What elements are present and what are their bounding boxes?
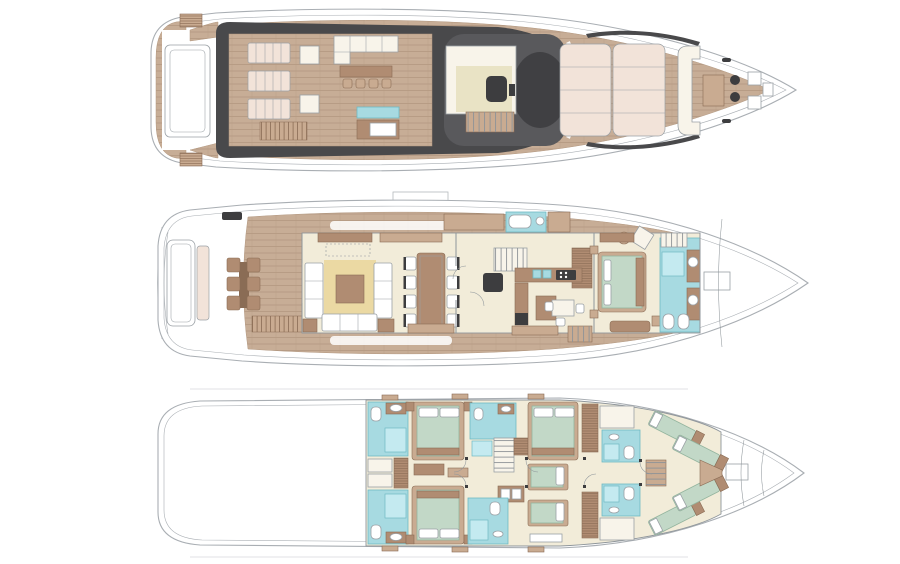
stairs-down [568, 326, 592, 342]
sink [609, 434, 619, 440]
sun-deck-plan [151, 9, 796, 171]
yacht-deck-plans [0, 0, 900, 564]
bar-counter [340, 66, 392, 77]
desk [530, 534, 562, 542]
chair [556, 318, 565, 326]
wheelhouse [444, 34, 568, 146]
stairs-up [494, 248, 527, 271]
sink [501, 406, 511, 412]
fridge [515, 313, 528, 325]
toilet [624, 446, 634, 459]
deck-table [300, 95, 319, 113]
shower [385, 428, 406, 452]
dumbwaiter [483, 273, 503, 292]
bidet [678, 314, 689, 329]
tv-sideboard [600, 233, 634, 242]
corridor-dresser [448, 468, 468, 477]
nightstand [590, 246, 598, 254]
foredeck-hatch [704, 272, 730, 290]
main-deck-plan [158, 192, 809, 366]
wardrobe [368, 474, 392, 487]
guest-bathroom [468, 498, 508, 544]
stairs [661, 233, 687, 247]
sink [609, 507, 619, 513]
chair [545, 302, 553, 311]
sun-loungers [248, 43, 290, 119]
bow-table [703, 75, 724, 106]
lower-deck-plan [158, 389, 804, 557]
galley-sink [533, 270, 541, 278]
master-bathroom [660, 233, 700, 333]
toilet [490, 502, 500, 515]
mess-table [552, 300, 574, 316]
guest-bathroom [602, 484, 640, 516]
vip-cabin-bed [412, 402, 464, 460]
aft-sunpad [165, 45, 210, 137]
tv-cabinet [318, 233, 372, 242]
shower [604, 444, 619, 460]
liferaft-hatch [180, 14, 202, 27]
guest-bathroom [368, 402, 408, 456]
toilet [371, 525, 381, 539]
galley-sink [543, 270, 551, 278]
toilet [663, 314, 674, 329]
deck-table [300, 46, 319, 64]
wardrobe [582, 404, 598, 452]
wet-bar [357, 107, 399, 139]
nightstand [590, 310, 598, 318]
sink [493, 531, 503, 537]
deck-grating [260, 122, 307, 140]
foredeck-hatch [726, 464, 748, 480]
credenza [380, 233, 442, 242]
deck-hatch [222, 212, 242, 220]
cockpit-dining-set [227, 258, 260, 310]
closet [514, 438, 528, 455]
guest-bathroom [470, 403, 516, 439]
crew-stairs [646, 460, 666, 486]
shower [604, 486, 619, 502]
guest-bathroom [602, 430, 640, 462]
corridor-dresser [414, 464, 444, 475]
dining-table [417, 253, 445, 331]
shower [385, 494, 406, 518]
shower [470, 520, 488, 540]
guest-bathroom [368, 490, 408, 544]
toilet [624, 487, 634, 500]
aft-bench [167, 240, 209, 326]
liferaft-hatch [180, 153, 202, 166]
sink [390, 405, 402, 412]
skylight-strip [330, 221, 452, 230]
sideboard [408, 324, 454, 333]
closet [600, 518, 634, 540]
side-table [303, 319, 317, 332]
cabinet [512, 326, 558, 335]
coffee-table [336, 275, 364, 303]
toilet [371, 407, 381, 421]
helm-seat [486, 76, 507, 102]
wardrobe [368, 459, 392, 472]
shower [662, 252, 684, 276]
sink [688, 257, 698, 267]
shower [472, 441, 492, 456]
stairs [466, 112, 514, 132]
sink [390, 534, 402, 541]
stove [556, 270, 576, 280]
day-head [444, 212, 570, 232]
double-cabin-bed [528, 402, 578, 460]
side-table [378, 319, 394, 332]
hanging-locker [394, 458, 408, 488]
nightstand [406, 535, 414, 544]
master-sofa [610, 321, 650, 332]
wardrobe [582, 492, 598, 538]
vip-cabin-bed [412, 486, 464, 544]
master-bed [598, 252, 646, 312]
aft-stairs [252, 316, 304, 332]
closet [600, 406, 634, 428]
chair [576, 304, 584, 313]
toilet [474, 408, 483, 420]
nightstand [406, 402, 414, 411]
sink [688, 295, 698, 305]
central-stairs [494, 438, 514, 472]
skylight-strip [330, 336, 452, 345]
